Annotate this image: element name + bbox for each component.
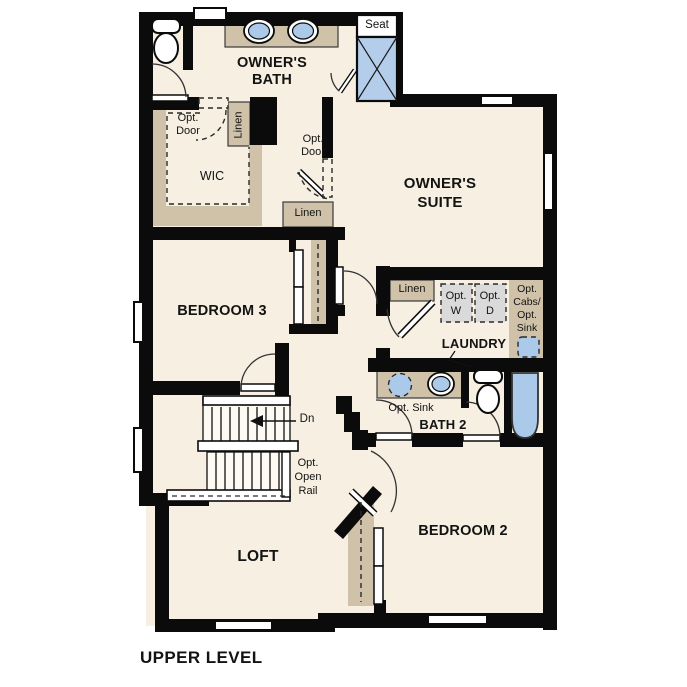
window-loft-bottom [215,621,272,630]
suite-opt-door-panel [323,159,332,197]
stair-mid-rail [198,441,298,451]
opt-laundry-sink [518,337,539,357]
room-label-wic: WIC [200,169,224,184]
bath2-inner-door-threshold [463,435,500,441]
wc-door-leaf [152,95,188,101]
label-hall-linen: Linen [295,207,322,220]
window-suite-top [481,96,513,105]
room-label-laundry: LAUNDRY [442,336,506,352]
wall-bedroom3-top [139,227,345,240]
bedroom2-closet-door-1 [374,528,383,566]
room-label-bedroom3: BEDROOM 3 [177,303,267,320]
label-wic-linen: Linen [232,112,245,139]
label-opt-cabs-sink: Opt.Cabs/ Opt.Sink [513,283,540,335]
bedroom2-closet-door-2 [374,566,383,604]
bedroom3-door-threshold [241,384,275,391]
toilet-icon [152,19,180,63]
wall-linen-block [250,97,277,145]
window-bath-top [194,8,226,20]
bedroom3-closet-door-2 [294,287,303,324]
wall-linen-left [382,280,390,305]
sink-icon [428,373,454,396]
wic-shelf-bottom [153,206,262,226]
wall-bottom-step [318,613,335,632]
wall-wc-right [183,26,193,70]
label-opt-dryer: Opt.D [480,289,501,319]
suite-door-leaf [335,267,343,304]
wall-suite-door-west [328,305,345,316]
bedroom3-closet-door-1 [294,250,303,287]
window-stairs-left [134,428,143,472]
wall-zigzag-2 [344,412,360,432]
label-opt-washer: Opt.W [446,289,467,319]
wall-bedroom3-south [139,381,240,395]
room-label-owners-suite: OWNER'SSUITE [404,174,476,212]
wall-suite-top [396,94,557,107]
floorplan-upper-level: OWNER'SBATH Seat Opt.Door Linen Opt.Door… [0,0,687,687]
wic-shelf-left [153,110,166,218]
bathtub-icon [512,373,538,438]
page-title: UPPER LEVEL [140,648,262,668]
label-suite-opt-door: Opt.Door [301,133,325,159]
wic-opt-door-panel [199,98,228,108]
wall-laundry-bath2 [368,358,557,372]
wall-suite-laundry [376,267,557,280]
wall-bath2-south-a [368,433,376,447]
room-label-bath2: BATH 2 [419,417,466,433]
toilet-icon [474,370,502,413]
label-wic-opt-door: Opt.Door [176,112,200,138]
window-suite-right [544,153,553,210]
wall-zigzag-3 [352,430,368,450]
stair-right-rail [282,452,290,497]
room-label-owners-bath: OWNER'SBATH [237,55,307,90]
label-opt-open-rail: Opt.Open Rail [295,456,322,498]
label-seat: Seat [365,19,389,33]
bath2-door-threshold [376,433,412,440]
wic-shelf-right [249,145,262,226]
wall-bath2-divider2 [504,370,512,440]
label-bath2-opt-sink: Opt. Sink [388,402,433,415]
room-label-bedroom2: BEDROOM 2 [418,523,508,540]
label-laundry-linen: Linen [399,283,426,296]
wall-left-lower [155,495,169,632]
floorplan-drawing [0,0,687,687]
wall-zigzag-1 [336,396,352,414]
window-bedroom2-bottom [428,615,487,624]
stair-top-rail [203,396,290,405]
label-stairs-down: Dn [300,413,315,427]
room-label-loft: LOFT [237,548,278,567]
bath2-opt-sink-bowl [389,374,412,397]
window-bedroom3-left [134,302,143,342]
wall-stair-stub [275,343,289,400]
wall-closet3-stub [289,233,296,252]
wall-bath2-south-b [412,433,463,447]
wall-closet3-bottom [289,324,338,334]
